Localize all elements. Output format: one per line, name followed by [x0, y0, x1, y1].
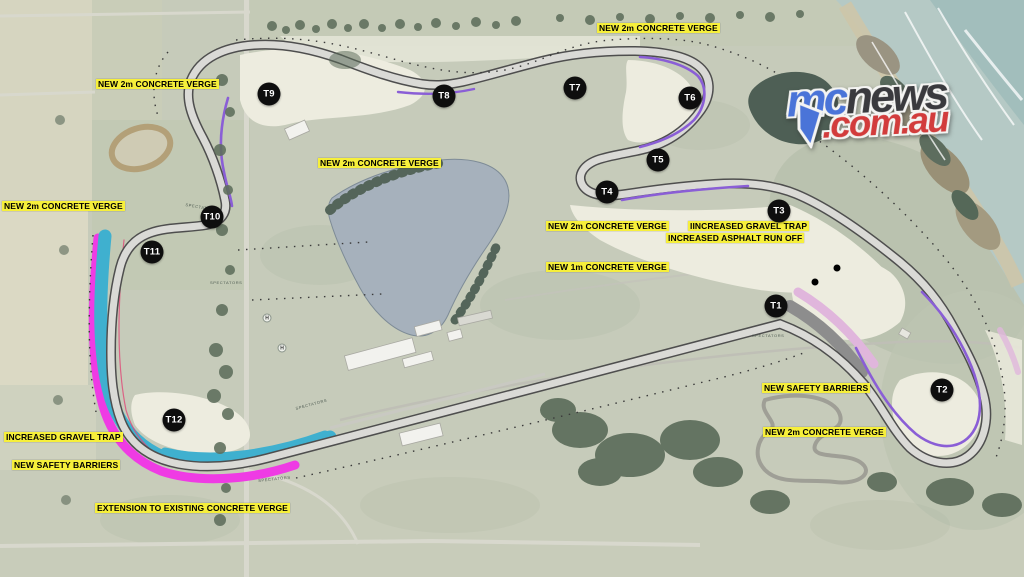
- aerial-map: [0, 0, 1024, 577]
- circuit-upgrade-map: SPECTATORSSPECTATORSSPECTATORSSPECTATORS…: [0, 0, 1024, 577]
